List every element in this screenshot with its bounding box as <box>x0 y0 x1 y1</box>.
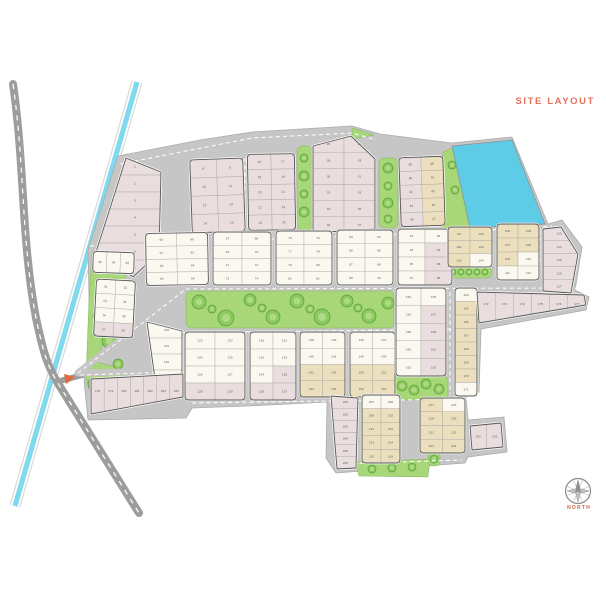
plot-number: 45 <box>432 203 436 207</box>
block-B1a: 484950 <box>93 251 135 273</box>
plot-number: 141 <box>331 354 336 358</box>
plot-number: 216 <box>388 454 393 458</box>
plot-number: 223 <box>429 444 434 448</box>
plot-number: 182 <box>148 389 153 393</box>
plot-number: 149 <box>381 354 386 358</box>
plot-number: 71 <box>226 263 230 267</box>
plot-number: 164 <box>463 293 468 297</box>
tree-icon <box>474 269 480 275</box>
plot-number: 143 <box>331 371 336 375</box>
plot-number: 146 <box>359 338 364 342</box>
tree-icon <box>388 464 396 472</box>
plot-number: 90 <box>377 276 381 280</box>
plot-number: 97 <box>410 276 414 280</box>
block-C4: 146147148149150151152153 <box>350 332 395 397</box>
plot-number: 43 <box>431 189 435 193</box>
tree-icon <box>300 190 308 198</box>
block-D1: 201202203204205206 <box>331 396 358 469</box>
plot-number: 73 <box>226 276 230 280</box>
tree-icon <box>409 385 419 395</box>
plot-number: 159 <box>431 330 436 334</box>
plot-number: 218 <box>451 403 456 407</box>
plot-number: 5 <box>134 233 136 237</box>
plot-number: 201 <box>343 400 348 404</box>
plot-number: 160 <box>406 348 411 352</box>
plot-number: 163 <box>431 365 436 369</box>
plot-number: 64 <box>191 263 195 267</box>
plot-number: 14 <box>203 221 207 225</box>
plot-number: 204 <box>343 437 348 441</box>
tree-icon <box>383 198 393 208</box>
plot-number: 215 <box>369 454 374 458</box>
plot-number: 94 <box>437 248 441 252</box>
tree-icon <box>421 379 431 389</box>
plot-number: 70 <box>255 250 259 254</box>
tree-icon <box>451 186 459 194</box>
plot-number: 42 <box>409 190 413 194</box>
plot-number: 85 <box>349 249 353 253</box>
plot-number: 102 <box>478 245 483 249</box>
plot-number: 47 <box>432 217 436 221</box>
plot-number: 54 <box>123 300 127 304</box>
plot-number: 177 <box>574 302 579 306</box>
tree-icon <box>314 309 330 325</box>
plot-number: 101 <box>456 245 461 249</box>
plot-number: 26 <box>327 142 331 146</box>
tree-icon <box>341 295 353 307</box>
plot-number: 19 <box>281 175 285 179</box>
plot-number: 33 <box>358 191 362 195</box>
plot-number: 22 <box>258 205 262 209</box>
plot-number: 151 <box>381 371 386 375</box>
plot-number: 129 <box>227 390 232 394</box>
tree-icon <box>113 359 123 369</box>
plot-number: 161 <box>431 348 436 352</box>
plot-number: 147 <box>381 338 386 342</box>
plot-number: 136 <box>259 390 264 394</box>
plot-number: 98 <box>437 276 441 280</box>
plot-number: 21 <box>281 190 285 194</box>
plot-number: 17 <box>281 159 285 163</box>
plot-number: 72 <box>255 263 259 267</box>
plot-number: 131 <box>282 339 287 343</box>
plot-number: 130 <box>259 339 264 343</box>
plot-number: 219 <box>429 417 434 421</box>
plot-number: 28 <box>327 158 331 162</box>
plot-number: 209 <box>369 414 374 418</box>
plot-number: 35 <box>358 207 362 211</box>
plot-number: 169 <box>463 360 468 364</box>
block-A3: 16171819202122232425 <box>247 154 295 231</box>
plot-number: 16 <box>257 160 261 164</box>
plot-number: 50 <box>125 261 129 265</box>
tree-icon <box>384 215 392 223</box>
plot-number: 104 <box>478 258 483 262</box>
tree-icon <box>482 269 488 275</box>
plot-number: 49 <box>112 261 116 265</box>
plot-number: 84 <box>377 235 381 239</box>
plot-number: 158 <box>406 330 411 334</box>
plot-number: 157 <box>431 313 436 317</box>
plot-number: 86 <box>377 249 381 253</box>
plot-number: 114 <box>557 245 562 249</box>
plot-number: 153 <box>381 387 386 391</box>
plot-number: 113 <box>557 232 562 236</box>
tree-icon <box>397 381 407 391</box>
plot-number: 183 <box>161 389 166 393</box>
plot-number: 66 <box>191 276 195 280</box>
plot-number: 150 <box>359 371 364 375</box>
plot-number: 61 <box>160 251 164 255</box>
green-area <box>297 146 312 230</box>
plot-number: 203 <box>343 425 348 429</box>
plot-number: 122 <box>197 339 202 343</box>
plot-number: 23 <box>282 205 286 209</box>
tree-icon <box>448 161 456 169</box>
plot-number: 65 <box>160 277 164 281</box>
plot-number: 213 <box>369 441 374 445</box>
plot <box>91 374 104 414</box>
tree-icon <box>354 304 362 312</box>
plot-number: 171 <box>463 387 468 391</box>
block-B6: 9192939495969798 <box>398 229 452 285</box>
plot-number: 75 <box>288 236 292 240</box>
block-A2: 89101112131415 <box>190 158 246 233</box>
green-area <box>379 158 398 228</box>
plot-number: 211 <box>369 427 374 431</box>
plot-number: 88 <box>377 262 381 266</box>
plot-number: 83 <box>349 235 353 239</box>
block-C1: 122123124125126127128129 <box>185 332 245 400</box>
plot-number: 138 <box>309 338 314 342</box>
plot-number: 120 <box>164 360 169 364</box>
tree-icon <box>299 207 309 217</box>
plot-number: 89 <box>349 276 353 280</box>
plot-number: 180 <box>121 389 126 393</box>
plot-number: 34 <box>327 207 331 211</box>
plot-number: 36 <box>327 223 331 227</box>
plot-number: 111 <box>505 271 510 275</box>
plot-number: 119 <box>164 344 169 348</box>
plot-number: 137 <box>282 390 287 394</box>
plot-number: 105 <box>505 229 510 233</box>
tree-icon <box>458 269 464 275</box>
tree-icon <box>384 182 392 190</box>
block-C6: 164165166167168169170171 <box>455 288 477 396</box>
plot-number: 202 <box>343 412 348 416</box>
tree-icon <box>266 310 280 324</box>
plot-number: 38 <box>408 162 412 166</box>
plot-number: 221 <box>429 430 434 434</box>
block-C3: 138139140141142143144145 <box>300 332 345 397</box>
tree-icon <box>434 384 444 394</box>
plot-number: 51 <box>104 285 108 289</box>
plot-number: 69 <box>226 250 230 254</box>
block-C2: 130131132133134135136137 <box>250 332 296 400</box>
plot-number: 205 <box>343 449 348 453</box>
plot-number: 24 <box>259 221 263 225</box>
tree-icon <box>368 465 376 473</box>
plot-number: 156 <box>406 313 411 317</box>
plot-number: 106 <box>526 229 531 233</box>
plot-number: 145 <box>331 387 336 391</box>
plot-number: 212 <box>388 427 393 431</box>
plot-number: 176 <box>556 302 561 306</box>
plot-number: 20 <box>258 190 262 194</box>
site-plan-svg: 1234567891011121314151617181920212223242… <box>0 0 606 606</box>
green-area <box>186 291 394 328</box>
plot-number: 155 <box>431 295 436 299</box>
plot-number: 128 <box>197 390 202 394</box>
north-label: NORTH <box>556 505 602 511</box>
plot-number: 110 <box>526 257 531 261</box>
plot-number: 214 <box>388 441 393 445</box>
plot-number: 135 <box>282 373 287 377</box>
block-B5: 8384858687888990 <box>337 230 393 285</box>
tree-icon <box>430 455 438 463</box>
plot-number: 118 <box>164 328 169 332</box>
tree-icon <box>408 463 416 471</box>
plot-number: 217 <box>429 403 434 407</box>
block-A5: 38394041424344454647 <box>399 156 445 226</box>
plot-number: 56 <box>122 314 126 318</box>
plot-number: 32 <box>327 191 331 195</box>
plot-number: 142 <box>309 371 314 375</box>
plot-number: 60 <box>190 237 194 241</box>
plot-number: 53 <box>103 299 107 303</box>
tree-icon <box>466 269 472 275</box>
plot-number: 148 <box>359 354 364 358</box>
plot-number: 77 <box>288 249 292 253</box>
plot-number: 170 <box>463 374 468 378</box>
plot-number: 82 <box>316 276 320 280</box>
plot-number: 78 <box>316 249 320 253</box>
plot-number: 107 <box>505 243 510 247</box>
block-C5: 154155156157158159160161162163 <box>396 288 446 376</box>
plot-number: 58 <box>121 328 125 332</box>
site-layout-map: 1234567891011121314151617181920212223242… <box>0 0 606 606</box>
plot-number: 175 <box>538 302 543 306</box>
plot-number: 31 <box>358 175 362 179</box>
plot-number: 116 <box>557 271 562 275</box>
tree-icon <box>299 171 309 181</box>
tree-icon <box>218 310 234 326</box>
block-B2: 5960616263646566 <box>146 232 209 285</box>
plot-number: 109 <box>505 257 510 261</box>
plot-number: 166 <box>463 320 468 324</box>
plot-number: 108 <box>526 243 531 247</box>
plot-number: 10 <box>202 185 206 189</box>
plot-number: 37 <box>358 223 362 227</box>
plot-number: 123 <box>227 339 232 343</box>
plot-number: 184 <box>174 389 179 393</box>
plot-number: 139 <box>331 338 336 342</box>
plot <box>104 374 117 414</box>
plot-number: 12 <box>203 203 207 207</box>
plot-number: 226 <box>492 435 497 439</box>
plot-number: 74 <box>255 276 259 280</box>
plot-number: 140 <box>309 354 314 358</box>
green-area <box>448 267 492 278</box>
plot-number: 132 <box>259 356 264 360</box>
tree-icon <box>208 305 216 313</box>
block-T2: 105106107108109110111112 <box>497 224 539 280</box>
tree-icon <box>382 297 394 309</box>
green-area <box>394 376 448 400</box>
plot-number: 206 <box>343 461 348 465</box>
plot-number: 99 <box>457 232 461 236</box>
plot-number: 96 <box>437 262 441 266</box>
plot-number: 25 <box>282 220 286 224</box>
plot-number: 124 <box>197 356 202 360</box>
plot-number: 181 <box>134 389 139 393</box>
plot-number: 222 <box>451 430 456 434</box>
plot-number: 87 <box>349 262 353 266</box>
plot-number: 167 <box>463 333 468 337</box>
block-D3: 217218219220221222223224 <box>420 398 465 453</box>
plot-number: 224 <box>451 444 456 448</box>
plot-number: 165 <box>463 306 468 310</box>
plot-number: 92 <box>437 234 441 238</box>
tree-icon <box>258 304 266 312</box>
plot-number: 162 <box>406 365 411 369</box>
block-A4: 262728293031323334353637 <box>313 136 375 233</box>
plot-number: 220 <box>451 417 456 421</box>
plot-number: 112 <box>526 271 531 275</box>
plot-number: 168 <box>463 347 468 351</box>
plot-number: 2 <box>134 182 136 186</box>
plot-number: 76 <box>316 236 320 240</box>
plot-number: 15 <box>230 220 234 224</box>
plot-number: 154 <box>406 295 411 299</box>
plot-number: 67 <box>226 237 230 241</box>
block-B4: 7576777879808182 <box>276 231 332 285</box>
tree-icon <box>300 154 308 162</box>
plot-number: 52 <box>124 286 128 290</box>
plot-number: 81 <box>288 276 292 280</box>
plot-number: 100 <box>478 232 483 236</box>
plot-number: 103 <box>456 258 461 262</box>
page-title: SITE LAYOUT <box>505 96 595 107</box>
plot-number: 1 <box>134 165 136 169</box>
plot-number: 210 <box>388 414 393 418</box>
plot-number: 134 <box>259 373 264 377</box>
plot <box>477 292 495 323</box>
plot-number: 172 <box>483 302 488 306</box>
plot-number: 62 <box>191 250 195 254</box>
tree-icon <box>290 294 304 308</box>
plot-number: 41 <box>431 175 435 179</box>
plot-number: 152 <box>359 387 364 391</box>
plot-number: 39 <box>430 162 434 166</box>
plot-number: 125 <box>227 356 232 360</box>
plot-number: 29 <box>358 158 362 162</box>
plot-number: 11 <box>229 184 233 188</box>
plot-number: 207 <box>369 400 374 404</box>
plot-number: 46 <box>410 217 414 221</box>
block-D4: 225226 <box>470 423 503 450</box>
block-T1: 99100101102103104 <box>448 227 492 267</box>
plot-number: 126 <box>197 373 202 377</box>
plot-number: 80 <box>316 263 320 267</box>
plot-number: 3 <box>134 199 136 203</box>
plot-number: 4 <box>134 216 136 220</box>
plot-number: 44 <box>410 204 414 208</box>
plot-number: 18 <box>258 175 262 179</box>
plot-number: 48 <box>98 260 102 264</box>
plot-number: 63 <box>160 264 164 268</box>
plot-number: 225 <box>476 435 481 439</box>
tree-icon <box>306 305 314 313</box>
plot-number: 79 <box>288 263 292 267</box>
plot-number: 30 <box>327 175 331 179</box>
tree-icon <box>383 163 393 173</box>
plot-number: 208 <box>388 400 393 404</box>
plot-number: 68 <box>255 237 259 241</box>
plot-number: 95 <box>410 262 414 266</box>
tree-icon <box>244 294 256 306</box>
plot-number: 127 <box>227 373 232 377</box>
plot-number: 179 <box>108 389 113 393</box>
plot-number: 115 <box>557 258 562 262</box>
plot-number: 178 <box>95 389 100 393</box>
plot-number: 55 <box>103 313 107 317</box>
north-compass-icon <box>566 479 591 504</box>
plot-number: 93 <box>410 248 414 252</box>
plot-number: 13 <box>229 202 233 206</box>
plot-number: 144 <box>309 387 314 391</box>
plot-number: 173 <box>502 302 507 306</box>
block-B3: 6768697071727374 <box>213 232 271 285</box>
plot-number: 57 <box>102 327 106 331</box>
plot-number: 59 <box>159 238 163 242</box>
plot-number: 40 <box>409 176 413 180</box>
block-D2: 207208209210211212213214215216 <box>362 395 400 463</box>
plot-number: 133 <box>282 356 287 360</box>
tree-icon <box>192 295 206 309</box>
plot-number: 91 <box>410 234 414 238</box>
plot-number: 174 <box>520 302 525 306</box>
block-B1b: 5152535455565758 <box>94 279 136 338</box>
plot-number: 117 <box>557 285 562 289</box>
plot <box>550 292 568 323</box>
tree-icon <box>362 309 376 323</box>
